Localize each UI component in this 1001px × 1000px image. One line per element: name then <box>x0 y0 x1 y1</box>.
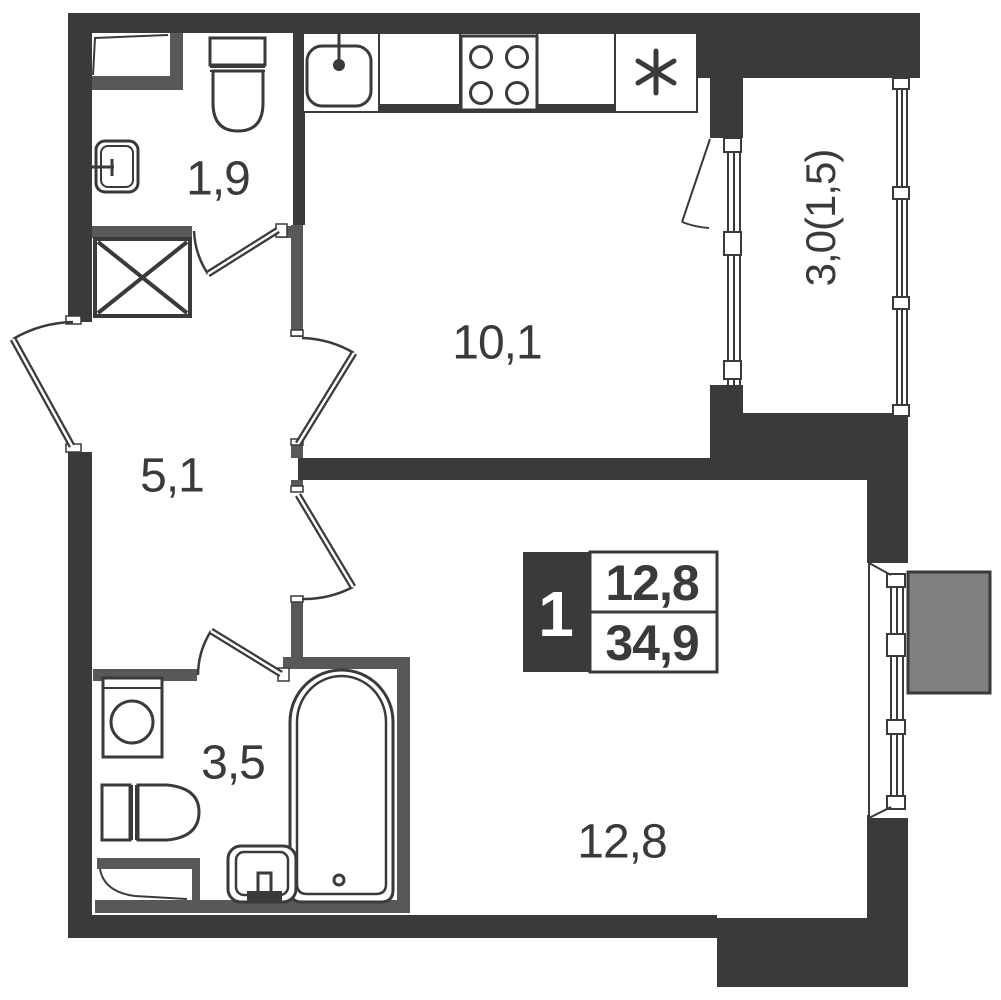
living-door-cap-bottom <box>291 596 303 602</box>
hallway-area-label: 5,1 <box>140 449 204 502</box>
wall-wc-bottom <box>92 226 192 238</box>
balcony-area-label: 3,0(1,5) <box>797 150 844 287</box>
kitchen-door-cap-top <box>291 330 303 336</box>
wall-hall-kitchen <box>291 225 303 337</box>
wall-top-balcony <box>697 13 920 78</box>
washing-machine-icon <box>103 678 162 757</box>
apartment-info-badge: 1 12,8 34,9 <box>523 552 717 672</box>
bathroom-sink-icon <box>228 846 296 902</box>
living-room-area-label: 12,8 <box>577 815 666 868</box>
wall-bathroom-niche <box>97 858 200 869</box>
floor-plan: 1 12,8 34,9 1,9 10,1 5,1 3,5 12,8 3,0(1,… <box>0 0 1001 1000</box>
living-door-cap-top <box>291 486 303 492</box>
badge-total-area: 34,9 <box>605 615 698 671</box>
wash-basin-icon <box>88 141 138 192</box>
adjacent-structure <box>908 572 990 693</box>
bathroom-toilet-icon <box>102 785 199 840</box>
wc-area-label: 1,9 <box>186 152 250 205</box>
toilet-icon <box>210 38 265 131</box>
wall-bathroom-right <box>397 657 410 913</box>
badge-living-area: 12,8 <box>605 555 699 611</box>
bathroom-area-label: 3,5 <box>201 736 265 789</box>
wall-bathroom-top-right <box>283 657 410 669</box>
wall-wc-shower-stub-h <box>92 76 183 90</box>
stove-icon <box>461 36 537 110</box>
wall-bottom <box>68 915 717 938</box>
living-room-window <box>868 563 908 818</box>
wardrobe-shaft-icon <box>95 239 190 316</box>
wall-bottom-step <box>717 918 908 987</box>
floor-plan-page: 1 12,8 34,9 1,9 10,1 5,1 3,5 12,8 3,0(1,… <box>0 0 1001 1000</box>
wall-right-upper <box>867 413 908 563</box>
kitchen-area-label: 10,1 <box>452 316 541 369</box>
wall-kitchen-door-jamb <box>291 445 303 458</box>
wall-balcony-door-top <box>710 78 743 138</box>
badge-rooms-count: 1 <box>538 578 574 650</box>
wall-left-lower <box>68 452 92 938</box>
wall-kitchen-living-divider <box>298 458 867 480</box>
wall-bathroom-niche-stub <box>192 858 200 903</box>
bathtub-icon <box>290 670 393 902</box>
wall-top <box>68 13 705 33</box>
